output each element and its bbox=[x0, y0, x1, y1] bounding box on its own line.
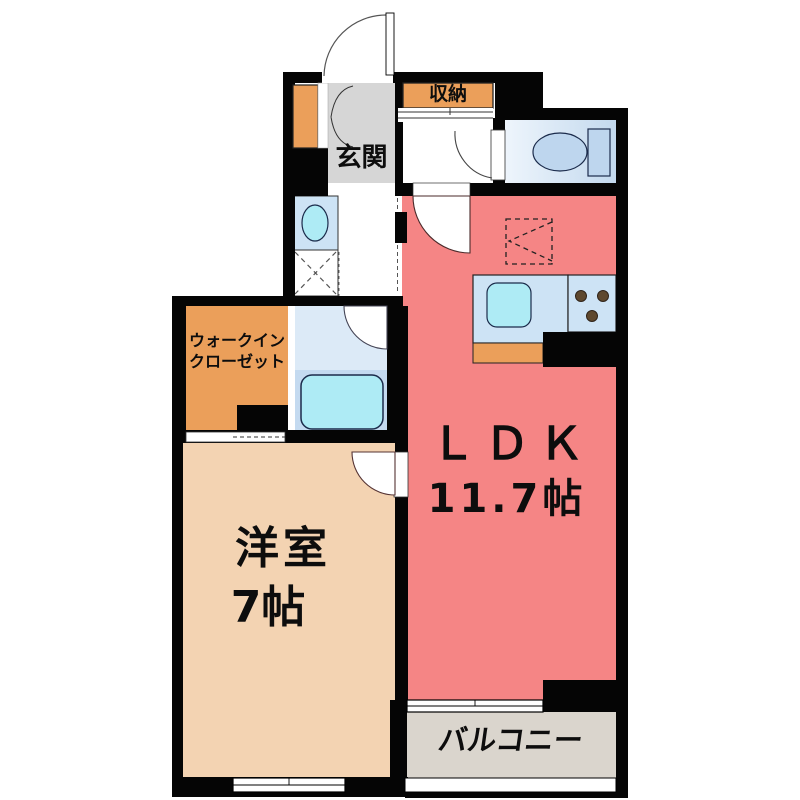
washing-machine-space-icon bbox=[293, 250, 338, 296]
bathtub-icon bbox=[301, 375, 383, 429]
western-room-label: 洋室 7帖 bbox=[183, 524, 383, 633]
kitchen-cabinet bbox=[473, 343, 543, 363]
entry-door-icon bbox=[322, 13, 394, 83]
western-room-window-icon bbox=[233, 778, 345, 792]
genkan-label: 玄関 bbox=[322, 144, 401, 174]
walkin-closet-label: ウォークイン クローゼット bbox=[186, 331, 288, 373]
stove-icon bbox=[568, 275, 616, 332]
western-room-size: 7帖 bbox=[183, 583, 353, 634]
balcony-label: バルコニー bbox=[403, 724, 619, 757]
floorplan-canvas: 玄関 収納 ウォークイン クローゼット ＬＤＫ 11.7帖 洋室 7帖 バルコニ… bbox=[0, 0, 800, 800]
western-room-name: 洋室 bbox=[183, 524, 383, 575]
closet-sliding-door-icon bbox=[186, 432, 285, 442]
ldk-size: 11.7帖 bbox=[398, 476, 616, 522]
kitchen-sink-icon bbox=[487, 283, 531, 327]
walkin-closet-label-line2: クローゼット bbox=[186, 352, 288, 373]
washbasin-icon bbox=[302, 205, 328, 241]
balcony-railing bbox=[405, 778, 616, 792]
storage-label: 収納 bbox=[403, 84, 493, 106]
storage-shelf-lines bbox=[398, 108, 493, 122]
balcony-window-icon bbox=[407, 700, 543, 712]
walkin-closet-label-line1: ウォークイン bbox=[186, 331, 288, 352]
ldk-label: ＬＤＫ 11.7帖 bbox=[398, 418, 616, 522]
ldk-name: ＬＤＫ bbox=[407, 418, 616, 470]
floorplan-drawing bbox=[0, 0, 800, 800]
washroom-sliding-door-icon bbox=[339, 196, 402, 296]
